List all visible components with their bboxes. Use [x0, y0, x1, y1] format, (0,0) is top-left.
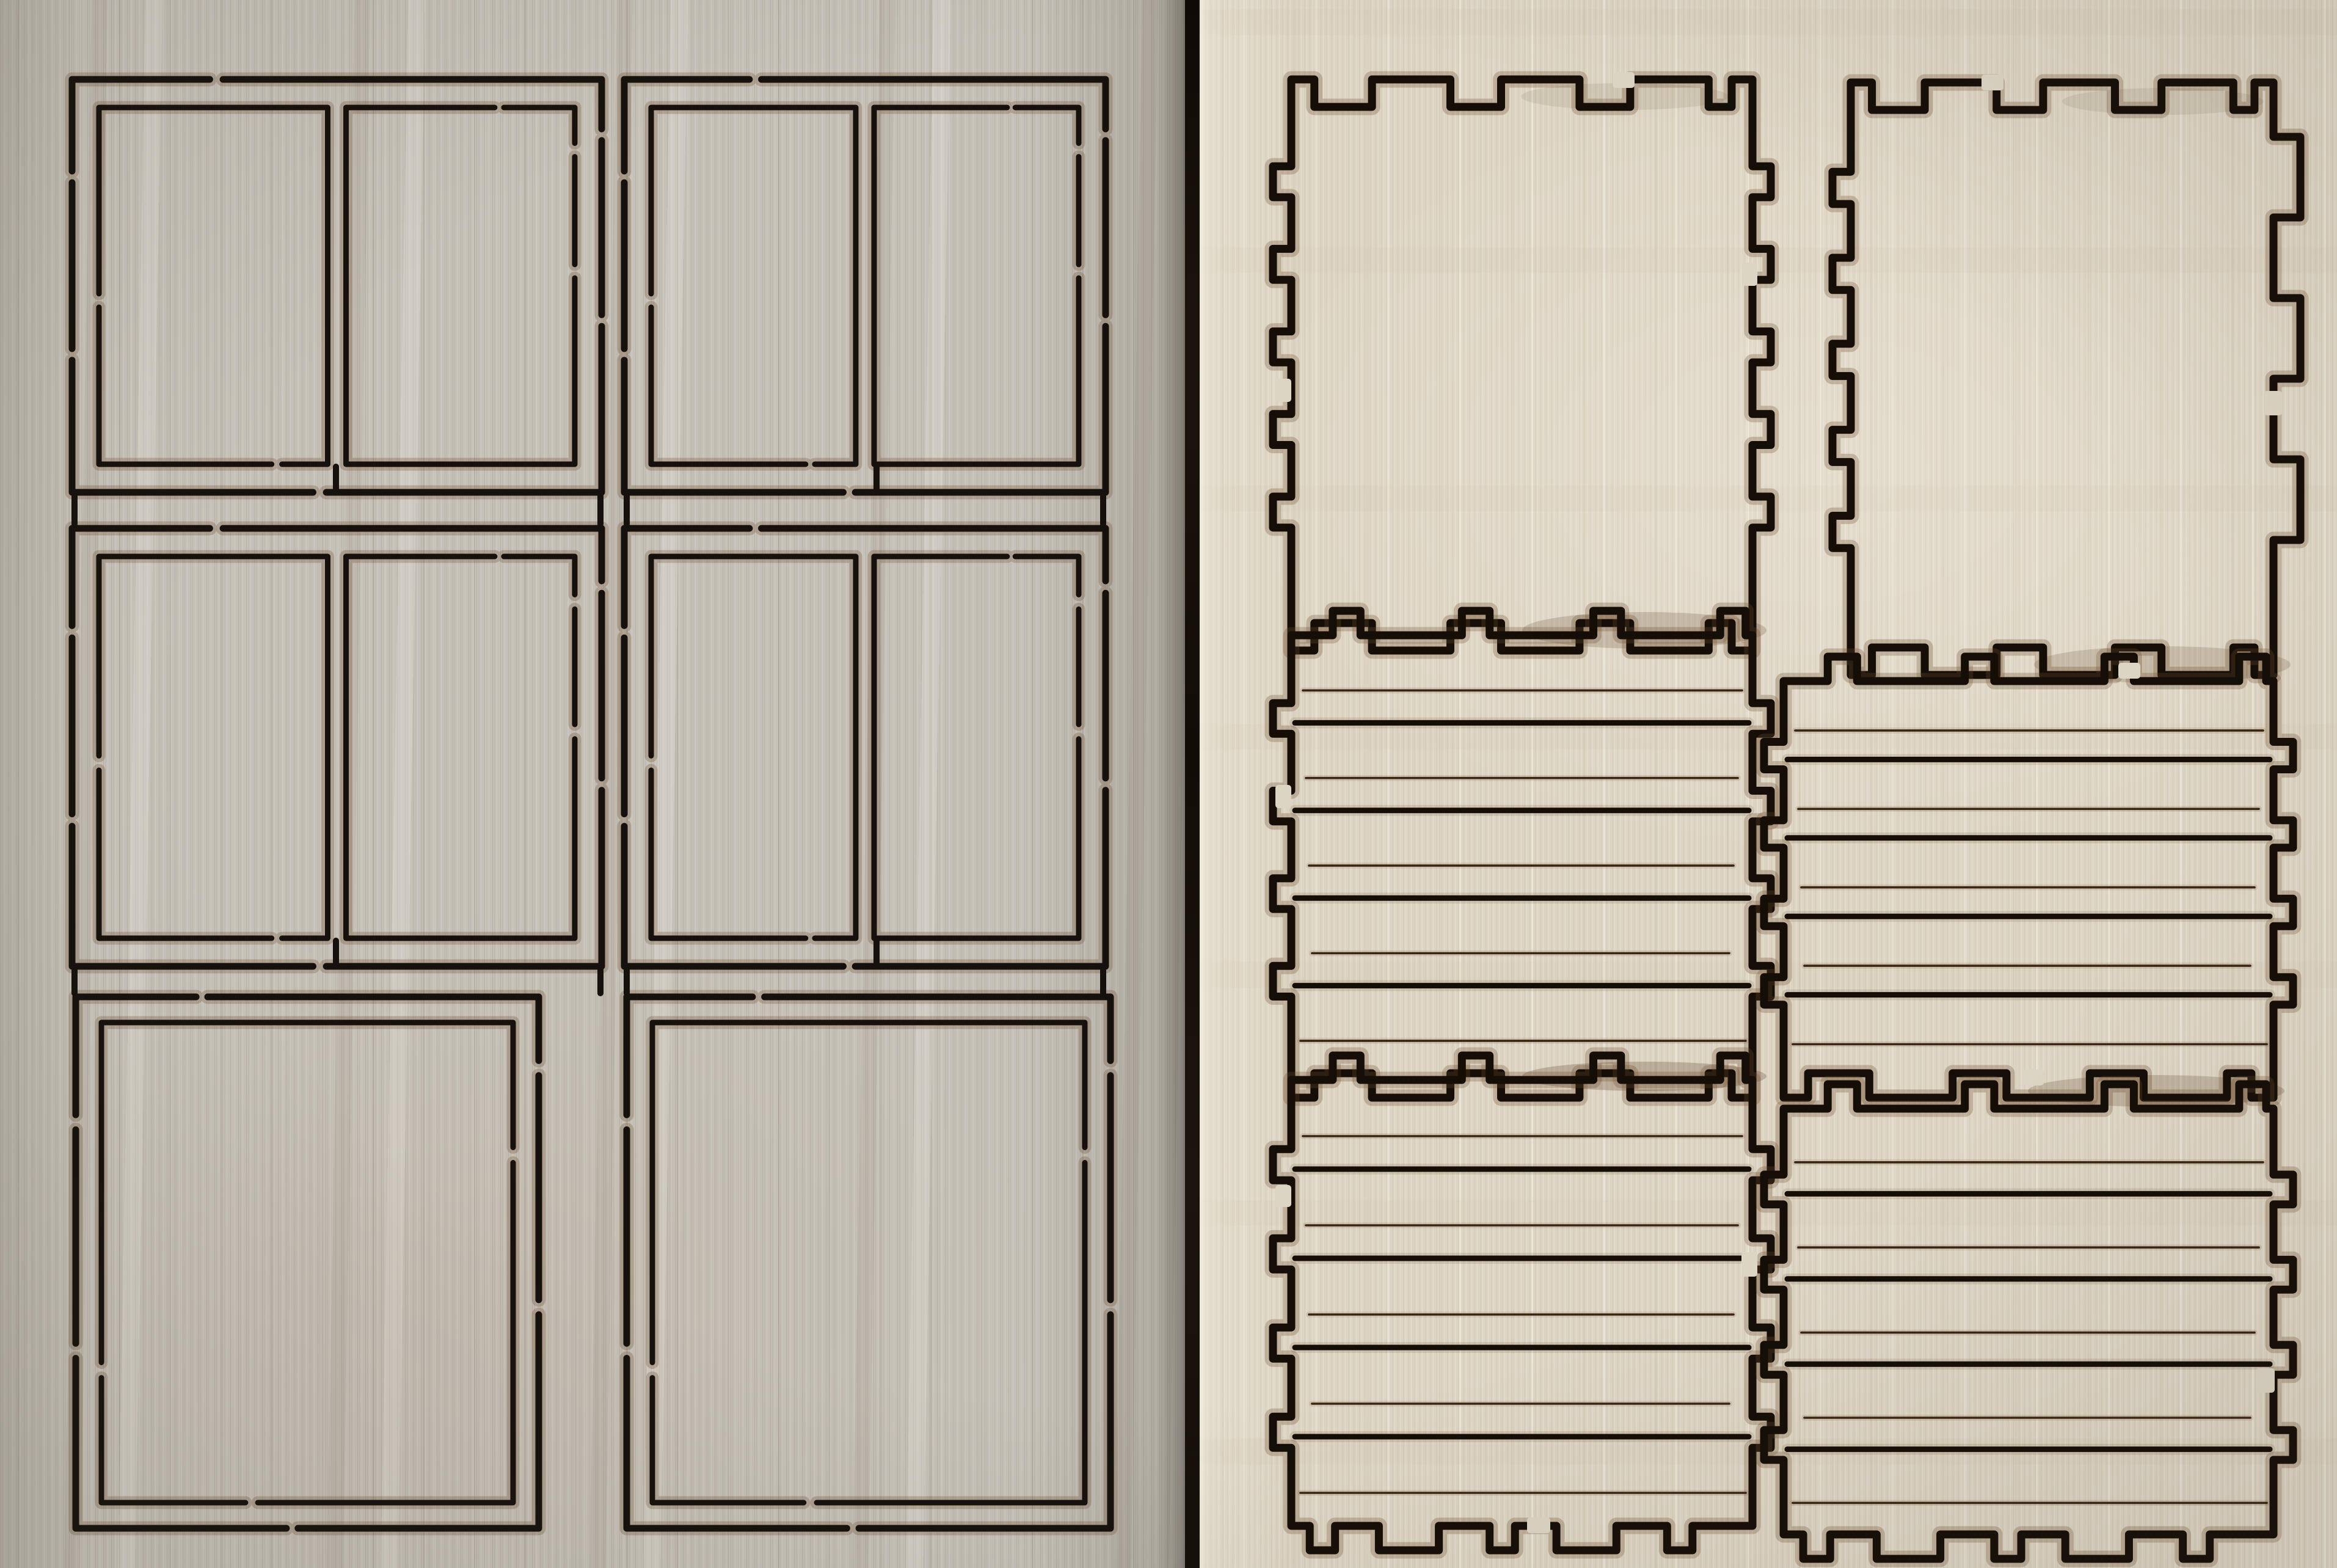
clapboard-panel-bottom-left — [1273, 1056, 1771, 1550]
clapboard-panel-mid-left — [1273, 611, 1771, 1098]
window-frame-two-pane-row1-col1 — [72, 79, 602, 492]
clapboard-panel-mid-right — [1764, 657, 2293, 1098]
photo-laser-cut-plywood-sheets — [0, 0, 2337, 1568]
clapboard-panel-bottom-right — [1764, 1084, 2293, 1559]
laser-cut-lines-layer — [0, 0, 2337, 1568]
joint-panel-plain-top-left — [1273, 79, 1771, 651]
holding-tab-tick-cuts — [75, 467, 1103, 993]
window-frame-two-pane-row2-col1 — [72, 528, 602, 966]
window-frame-two-pane-row2-col2 — [624, 528, 1106, 966]
joint-panel-plain-top-right — [1832, 82, 2300, 675]
window-frame-single-pane-row3-col2 — [627, 997, 1110, 1528]
window-frame-two-pane-row1-col2 — [624, 79, 1106, 492]
window-frame-single-pane-row3-col1 — [76, 997, 539, 1528]
